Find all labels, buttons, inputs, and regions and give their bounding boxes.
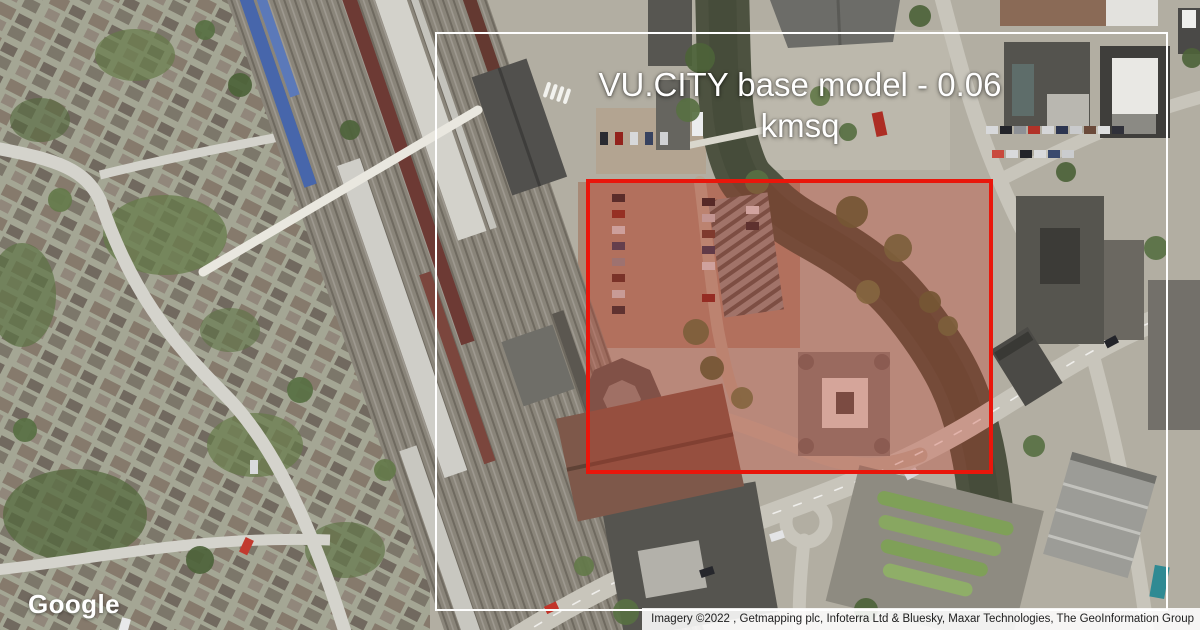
map-viewport[interactable]: VU.CITY base model - 0.06 kmsq Google Im… [0,0,1200,630]
site-boundary-overlay [586,179,993,474]
attribution-text: Imagery ©2022 , Getmapping plc, Infoterr… [651,613,1194,625]
model-boundary-label: VU.CITY base model - 0.06 kmsq [563,64,1037,146]
google-logo[interactable]: Google [28,589,120,620]
attribution-bar: Imagery ©2022 , Getmapping plc, Infoterr… [642,608,1200,630]
